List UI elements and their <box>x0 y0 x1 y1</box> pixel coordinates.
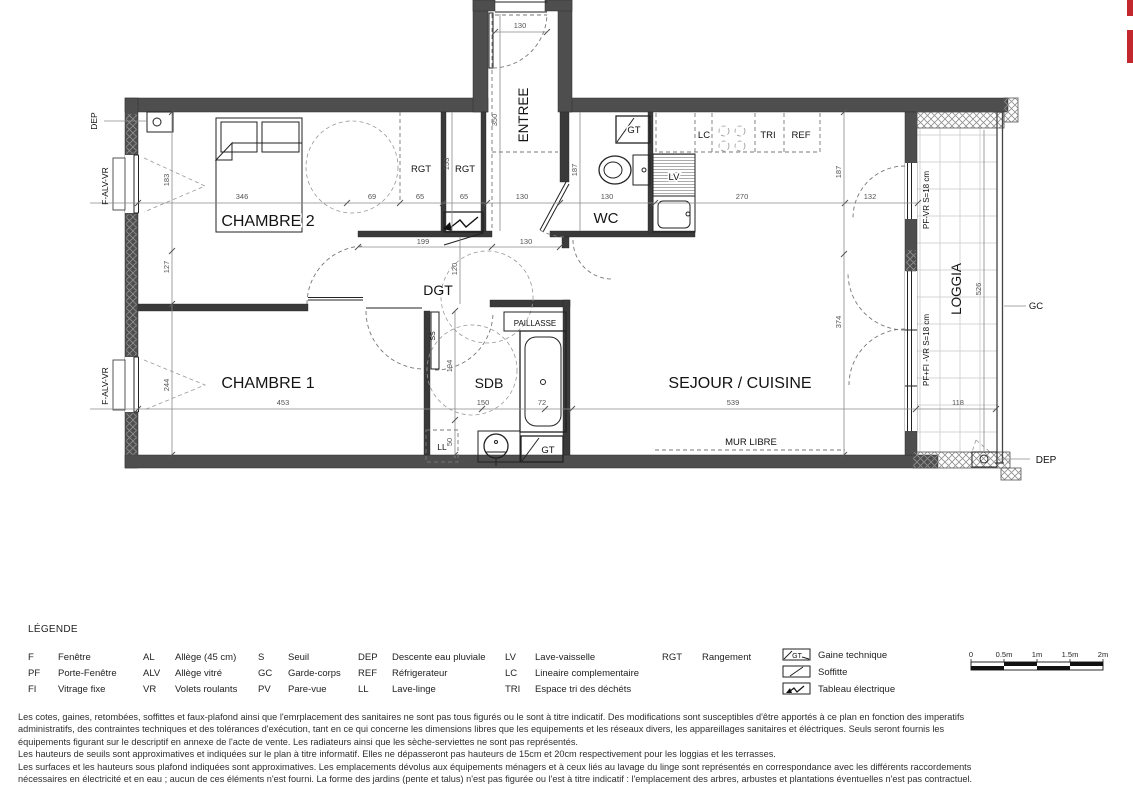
room-labels: CHAMBRE 2 CHAMBRE 1 SEJOUR / CUISINE WC … <box>221 88 964 392</box>
dim-130-wc: 130 <box>601 192 614 201</box>
bathtub <box>520 331 566 432</box>
floor-plan: GT LV PAILLASSE GT <box>0 0 1133 612</box>
dim-72: 72 <box>538 398 546 407</box>
scale-tick-15: 1.5m <box>1062 650 1079 659</box>
disclaimer-line: Les cotes, gaines, retombées, soffittes … <box>18 711 1128 723</box>
dim-350: 350 <box>490 114 499 127</box>
legend-def: Garde-corps <box>288 668 341 679</box>
legend-abbr: PF <box>28 668 58 679</box>
scale-tick-05: 0.5m <box>996 650 1013 659</box>
chambre1-door <box>366 308 424 369</box>
disclaimer-line: Les surfaces et les hauteurs sous plafon… <box>18 761 1128 773</box>
soffitte-icon <box>782 665 812 679</box>
legend-abbr: ALV <box>143 668 175 679</box>
dim-150: 150 <box>477 398 490 407</box>
room-chambre1: CHAMBRE 1 <box>221 375 314 392</box>
room-dgt: DGT <box>423 282 453 298</box>
legend-def: Pare-vue <box>288 684 327 695</box>
dim-127: 127 <box>162 261 171 274</box>
scale-tick-0: 0 <box>969 650 973 659</box>
scale-bar: 0 0.5m 1m 1.5m 2m <box>965 648 1115 677</box>
room-chambre2: CHAMBRE 2 <box>221 213 314 230</box>
wc-door <box>540 182 569 237</box>
room-loggia: LOGGIA <box>949 263 964 315</box>
dim-130-dgt: 130 <box>520 237 533 246</box>
legend-abbr: REF <box>358 668 392 679</box>
dim-374: 374 <box>834 316 843 329</box>
legend-def: Allège vitré <box>175 668 222 679</box>
room-sdb: SDB <box>475 375 504 391</box>
kitchen-dishwasher: LV <box>653 154 695 196</box>
disclaimer-line: équipements figurant sur le descriptif e… <box>18 736 1128 748</box>
gt-symbol-text: GT <box>792 653 802 660</box>
dim-153: 153 <box>442 158 451 171</box>
legend-def: Soffitte <box>818 667 847 678</box>
legend-abbr: LL <box>358 684 392 695</box>
dim-118: 118 <box>952 398 964 407</box>
lc-label: LC <box>698 130 710 141</box>
gaine-technique-wc: GT <box>616 116 650 143</box>
ref-label: REF <box>792 130 811 141</box>
dim-539: 539 <box>727 398 740 407</box>
scale-bar-graphic: 0 0.5m 1m 1.5m 2m <box>965 648 1115 674</box>
gt-sdb-label: GT <box>541 445 554 456</box>
legend-abbr: TRI <box>505 684 535 695</box>
legend-def: Tableau électrique <box>818 684 895 695</box>
legend-abbr: FI <box>28 684 58 695</box>
window-left-bottom-label: F-ALV-VR <box>100 367 110 405</box>
lv-label: LV <box>669 172 681 183</box>
legend-def: Réfrigerateur <box>392 668 447 679</box>
legend-abbr: RGT <box>662 652 702 663</box>
dim-526: 526 <box>974 283 983 296</box>
window-left-top-label: F-ALV-VR <box>100 167 110 205</box>
legend-symbol-tableau-electrique <box>782 682 812 699</box>
legend-def: Lave-vaisselle <box>535 652 595 663</box>
window-right-top-label: PF-VR S=18 cm <box>922 171 931 229</box>
legend-def: Porte-Fenêtre <box>58 668 117 679</box>
legend-symbol-gaine-technique: GT <box>782 648 812 665</box>
dim-65b: 65 <box>460 192 468 201</box>
ss-label: SS <box>430 331 437 341</box>
disclaimer-line: nécessaires en électricité et en eau ; a… <box>18 773 1128 785</box>
sdb-door <box>431 312 493 370</box>
dim-130-entree: 130 <box>516 192 529 201</box>
room-entree: ENTREE <box>516 88 531 143</box>
gt-wc-label: GT <box>627 125 640 136</box>
tableau-electrique-icon <box>782 682 812 696</box>
dep-downpipe-left <box>104 112 173 132</box>
dim-120: 120 <box>450 263 459 276</box>
legend-def: Rangement <box>702 652 751 663</box>
legend-def: Gaine technique <box>818 650 887 661</box>
electrical-panel <box>443 212 483 245</box>
legend-abbr: LC <box>505 668 535 679</box>
dim-194: 194 <box>445 360 454 373</box>
legend-abbr: F <box>28 652 58 663</box>
floor-plan-page: GT LV PAILLASSE GT <box>0 0 1133 800</box>
legend-abbr: AL <box>143 652 175 663</box>
legend-title: LÉGENDE <box>28 624 78 635</box>
dashed-guides <box>306 14 845 462</box>
kitchen-sink <box>653 196 695 232</box>
chambre2-door <box>307 246 365 304</box>
gaine-technique-icon: GT <box>782 648 812 662</box>
legend-abbr: PV <box>258 684 288 695</box>
legend-symbol-soffitte <box>782 665 812 682</box>
disclaimer-line: Les hauteurs de seuils sont approximativ… <box>18 748 1128 760</box>
legend-def: Volets roulants <box>175 684 237 695</box>
loggia-railing <box>995 112 1004 463</box>
dim-187-wc: 187 <box>570 164 579 177</box>
room-sejour-cuisine: SEJOUR / CUISINE <box>668 375 811 392</box>
red-edge-mark-top <box>1127 0 1133 16</box>
dim-65a: 65 <box>416 192 424 201</box>
dim-187-sejour: 187 <box>834 166 843 179</box>
dim-183: 183 <box>162 174 171 187</box>
dim-199: 199 <box>417 237 430 246</box>
dim-244: 244 <box>162 379 171 392</box>
dim-453: 453 <box>277 398 290 407</box>
legend-def: Lave-linge <box>392 684 436 695</box>
scale-tick-1: 1m <box>1032 650 1042 659</box>
legend-def: Fenêtre <box>58 652 91 663</box>
tri-label: TRI <box>760 130 775 141</box>
hob <box>719 126 745 151</box>
window-right-bottom-label: PF+FI -VR S=18 cm <box>922 314 931 386</box>
dim-270: 270 <box>736 192 749 201</box>
legend-def: Lineaire complementaire <box>535 668 639 679</box>
dim-130-top: 130 <box>514 21 527 30</box>
paillasse: PAILLASSE <box>504 312 566 331</box>
disclaimer: Les cotes, gaines, retombées, soffittes … <box>18 711 1128 786</box>
legend-abbr: S <box>258 652 288 663</box>
ll-label: LL <box>437 442 447 452</box>
legend: LÉGENDE FFenêtre PFPorte-Fenêtre FIVitra… <box>0 618 1133 710</box>
legend-abbr: DEP <box>358 652 392 663</box>
legend-abbr: VR <box>143 684 175 695</box>
gc-label: GC <box>1029 301 1043 312</box>
legend-def: Descente eau pluviale <box>392 652 485 663</box>
dim-69: 69 <box>368 192 376 201</box>
rgt2-label: RGT <box>455 164 475 175</box>
legend-def: Seuil <box>288 652 309 663</box>
room-wc: WC <box>594 210 619 227</box>
legend-abbr: LV <box>505 652 535 663</box>
wc-dgt-door <box>573 240 612 279</box>
legend-def: Espace tri des déchéts <box>535 684 631 695</box>
dim-346: 346 <box>236 192 249 201</box>
dep-left-label: DEP <box>89 112 99 130</box>
legend-def: Vitrage fixe <box>58 684 105 695</box>
rgt1-label: RGT <box>411 164 431 175</box>
dim-132: 132 <box>864 192 877 201</box>
scale-tick-2: 2m <box>1098 650 1108 659</box>
loggia-door-single <box>853 163 912 219</box>
paillasse-label: PAILLASSE <box>514 319 557 328</box>
legend-def: Allège (45 cm) <box>175 652 236 663</box>
legend-abbr: GC <box>258 668 288 679</box>
entrance-door <box>489 2 547 68</box>
disclaimer-line: administratifs, des contraintes techniqu… <box>18 723 1128 735</box>
toilet <box>599 155 650 185</box>
dep-right-label: DEP <box>1036 455 1057 466</box>
mur-libre-label: MUR LIBRE <box>725 437 777 448</box>
red-edge-mark-bottom <box>1127 30 1133 63</box>
